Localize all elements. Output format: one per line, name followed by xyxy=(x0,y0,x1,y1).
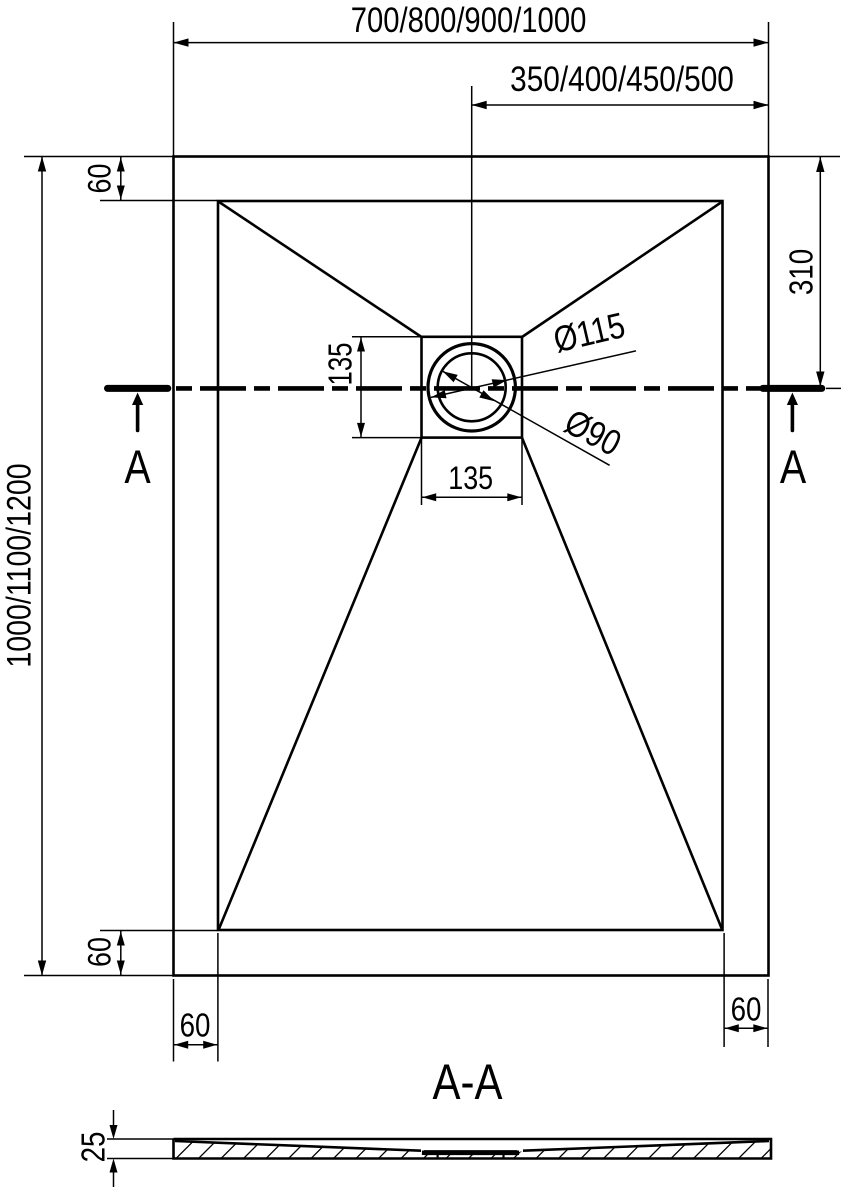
svg-text:700/800/900/1000: 700/800/900/1000 xyxy=(351,0,587,39)
svg-text:60: 60 xyxy=(82,937,118,967)
svg-text:60: 60 xyxy=(731,991,762,1028)
svg-text:310: 310 xyxy=(783,249,820,295)
svg-text:25: 25 xyxy=(75,1132,112,1163)
svg-text:1000/1100/1200: 1000/1100/1200 xyxy=(0,463,38,667)
svg-text:135: 135 xyxy=(448,461,493,497)
svg-text:60: 60 xyxy=(180,1007,211,1044)
svg-text:60: 60 xyxy=(82,164,118,194)
svg-text:A: A xyxy=(124,442,150,494)
svg-text:135: 135 xyxy=(323,343,360,386)
svg-text:350/400/450/500: 350/400/450/500 xyxy=(510,59,734,99)
svg-text:A: A xyxy=(780,442,806,494)
svg-text:A-A: A-A xyxy=(433,1054,503,1110)
